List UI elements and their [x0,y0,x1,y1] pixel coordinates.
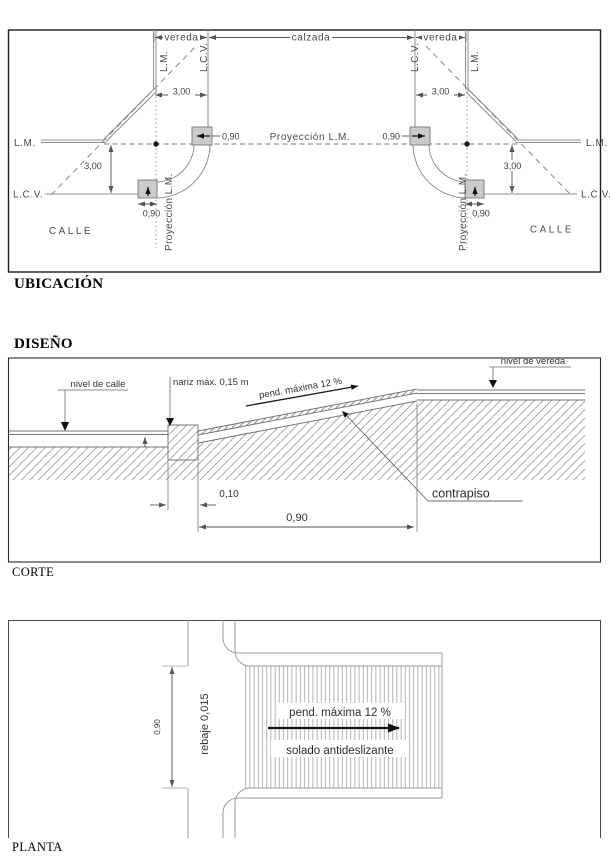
lm-label-right: L.M. [586,138,608,149]
corner-point-left [153,141,158,146]
contrapiso-label: contrapiso [432,487,490,501]
ubicacion-caption: UBICACIÓN [14,276,103,293]
calle-label-left: CALLE [49,226,93,237]
dim-010-label: 0,10 [219,489,239,500]
ubicacion-plan: vereda calzada vereda L.M. L.C.V. L.C.V.… [9,30,611,272]
diseno-heading: DISEÑO [14,336,73,353]
rebaje-label: rebaje 0,015 [199,693,211,754]
drawing-sheet: vereda calzada vereda L.M. L.C.V. L.C.V.… [0,0,611,860]
nivel-de-vereda-label: nivel de vereda [501,356,566,367]
drawing-canvas: vereda calzada vereda L.M. L.C.V. L.C.V.… [0,0,611,860]
vereda-label-left: vereda [164,33,198,44]
nivel-de-calle-label: nivel de calle [71,379,126,390]
corner-point-right [464,141,469,146]
lm-label-top-left: L.M. [159,51,170,72]
nivel-de-calle-marker: nivel de calle [58,379,128,431]
lcv-label-left: L.C.V. [13,190,43,201]
dim-090-upper-right: 0,90 [382,132,400,142]
pend-maxima-corte-label: pend. máxima 12 % [258,376,343,402]
dim-090-corte: 0,90 [199,512,414,527]
calle-label-right: CALLE [530,225,574,236]
dim-010: 0,10 [150,489,239,505]
dim-300-vert-right: 3,00 [504,161,522,171]
dim-090-lower-right: 0,90 [472,209,490,219]
property-lines [41,30,581,198]
dim-090-lower-left: 0,90 [143,209,161,219]
corte-caption: CORTE [12,565,54,580]
dim-090-corte-label: 0,90 [286,512,307,524]
proyeccion-lm-vertical-label-left: Proyección L.M. [164,173,175,251]
dim-090-upper-left: 0,90 [222,132,240,142]
lm-label-top-right: L.M. [470,51,481,72]
vereda-label-right: vereda [423,33,457,44]
calzada-label: calzada [292,33,331,44]
planta-caption: PLANTA [12,840,63,855]
lcv-label-top-right: L.C.V. [410,43,421,72]
dim-300-vert-left: 3,00 [84,161,102,171]
dim-300-top-right: 3,00 [432,87,450,97]
lm-label-left: L.M. [14,138,36,149]
planta-plan: 0,90 rebaje 0,015 pend. máxima 12 % sola… [9,620,601,838]
nariz-label: nariz máx. 0,15 m [173,377,249,388]
lcv-label-right: L.C.V. [581,190,611,201]
dim-090-planta-label: 0,90 [153,719,162,735]
corte-section: nivel de calle nariz máx. 0,15 m pend. m… [9,356,601,562]
nariz-marker: nariz máx. 0,15 m [166,377,249,426]
nivel-de-vereda-marker: nivel de vereda [489,356,571,388]
lcv-label-top-left: L.C.V. [199,43,210,72]
reference-lines [51,46,571,248]
pend-maxima-corte: pend. máxima 12 % [246,376,358,406]
pend-maxima-planta-label: pend. máxima 12 % [289,707,391,719]
proyeccion-lm-horizontal-label: Proyección L.M. [270,132,351,143]
dim-300-top-left: 3,00 [173,87,191,97]
solado-label: solado antideslizante [286,745,393,757]
proyeccion-lm-vertical-label-right: Proyección L.M. [458,173,469,251]
